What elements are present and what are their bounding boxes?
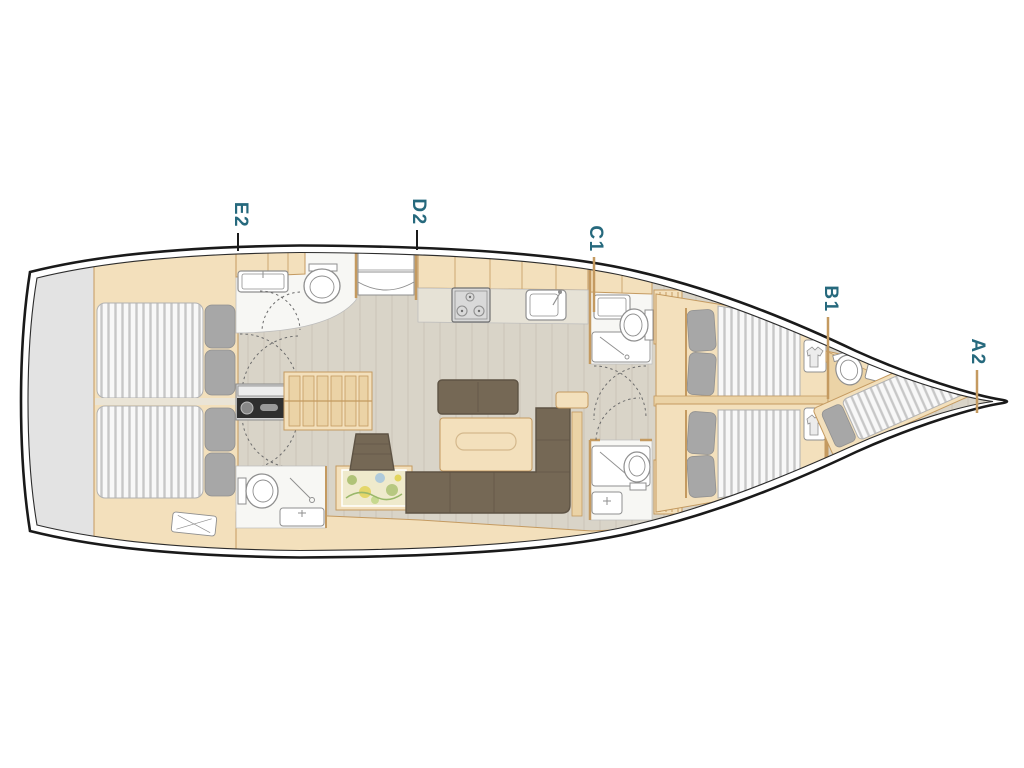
swim-platform <box>28 264 96 539</box>
cabin-label-c1: C1 <box>584 225 606 252</box>
nav-station <box>336 466 412 510</box>
bow-section <box>813 348 971 457</box>
yacht-floorplan-svg <box>0 0 1024 768</box>
pillow-icon <box>205 305 235 348</box>
salon-table <box>440 418 532 471</box>
locker-shirt-top-icon <box>804 340 826 372</box>
aft-beds-divider <box>95 398 237 405</box>
sofa-side-joinery <box>572 412 582 516</box>
pillow-icon <box>687 411 717 455</box>
pillow-icon <box>205 408 235 451</box>
salon-bench <box>438 380 518 414</box>
pillow-icon <box>687 455 717 498</box>
toilet-icon <box>238 474 278 508</box>
companionway-stairs <box>284 372 372 430</box>
engine-compartment <box>236 384 286 420</box>
cabin-label-a2: A2 <box>966 338 988 365</box>
interior <box>28 240 1010 570</box>
sofa-armrest-joinery <box>556 392 588 408</box>
pillow-icon <box>687 309 717 352</box>
pillow-icon <box>205 350 235 395</box>
cabin-label-b1: B1 <box>819 285 841 312</box>
pillow-icon <box>205 453 235 496</box>
lower-aft-head <box>236 466 326 528</box>
stove-icon <box>452 288 490 322</box>
toilet-icon <box>620 309 653 341</box>
cabin-label-e2: E2 <box>229 202 251 228</box>
stern-locker-panel <box>171 512 217 536</box>
cabin-label-d2: D2 <box>407 198 429 225</box>
toilet-icon <box>304 264 340 303</box>
nav-seat <box>350 434 394 470</box>
yacht-floorplan-page: E2 D2 C1 B1 A2 <box>0 0 1024 768</box>
galley-sink-icon <box>526 290 566 320</box>
pillow-icon <box>687 352 717 396</box>
aft-cabin-top-bed <box>97 303 235 398</box>
mid-head-bottom <box>590 440 652 520</box>
fridge-unit <box>358 250 416 300</box>
